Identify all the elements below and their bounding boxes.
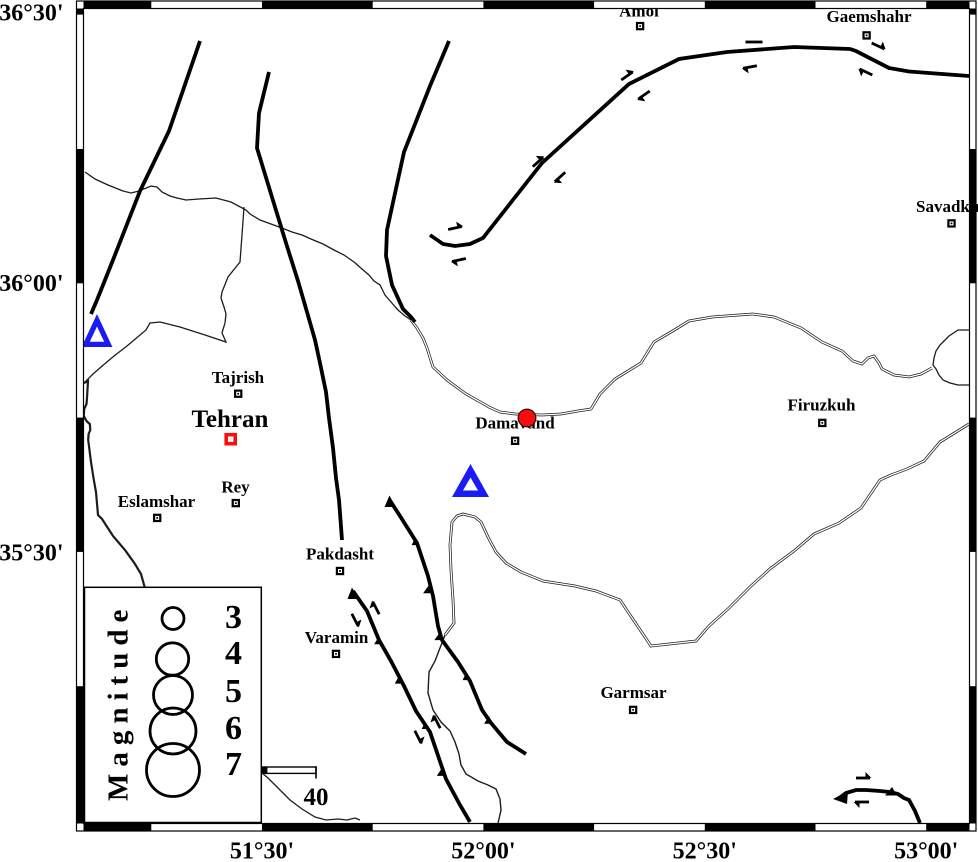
svg-text:4: 4: [225, 635, 242, 672]
svg-text:6: 6: [225, 710, 242, 747]
svg-text:52°30': 52°30': [673, 839, 737, 862]
svg-text:Rey: Rey: [221, 477, 250, 496]
svg-text:5: 5: [225, 673, 242, 710]
svg-text:35°30': 35°30': [0, 541, 64, 567]
svg-text:Savadkuh: Savadkuh: [916, 197, 978, 216]
svg-text:36°00': 36°00': [0, 271, 64, 297]
svg-text:51°30': 51°30': [230, 839, 294, 862]
svg-text:52°00': 52°00': [451, 839, 515, 862]
svg-text:Pakdasht: Pakdasht: [306, 545, 374, 564]
svg-text:Tehran: Tehran: [192, 406, 269, 433]
svg-text:40: 40: [304, 784, 329, 811]
svg-text:Tajrish: Tajrish: [212, 368, 265, 387]
svg-text:Garmsar: Garmsar: [600, 683, 667, 702]
svg-text:3: 3: [225, 599, 242, 636]
svg-text:Damavand: Damavand: [475, 414, 555, 433]
svg-text:53°00': 53°00': [894, 839, 958, 862]
svg-text:36°30': 36°30': [0, 1, 64, 27]
svg-text:Eslamshar: Eslamshar: [118, 492, 196, 511]
svg-text:7: 7: [225, 746, 242, 783]
svg-text:Varamin: Varamin: [305, 628, 369, 647]
svg-text:Magnitude: Magnitude: [103, 603, 135, 801]
svg-text:Gaemshahr: Gaemshahr: [827, 7, 912, 26]
svg-text:Firuzkuh: Firuzkuh: [787, 396, 856, 415]
